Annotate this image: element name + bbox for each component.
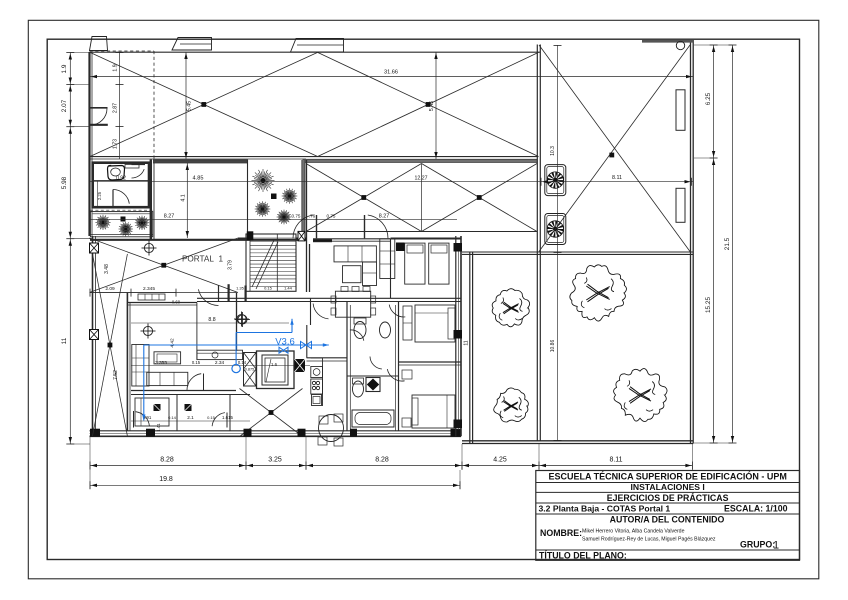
svg-text:8.8: 8.8 bbox=[208, 317, 215, 323]
svg-text:21.5: 21.5 bbox=[724, 237, 731, 250]
svg-text:4.42: 4.42 bbox=[170, 338, 176, 348]
svg-text:5.98: 5.98 bbox=[61, 176, 68, 189]
svg-text:0.15: 0.15 bbox=[192, 360, 201, 365]
svg-text:0.14: 0.14 bbox=[168, 415, 177, 420]
svg-text:7.52: 7.52 bbox=[113, 370, 119, 380]
svg-text:PORTAL 1: PORTAL 1 bbox=[182, 255, 224, 264]
svg-text:2.87: 2.87 bbox=[113, 103, 119, 113]
svg-text:Mikel Herrero Vitoria, Alba Ca: Mikel Herrero Vitoria, Alba Candela Valv… bbox=[582, 529, 685, 535]
svg-text:8.11: 8.11 bbox=[612, 175, 622, 181]
svg-text:3.25: 3.25 bbox=[268, 456, 282, 463]
svg-text:1.73: 1.73 bbox=[113, 139, 119, 149]
svg-text:8.28: 8.28 bbox=[160, 456, 174, 463]
svg-text:4.85: 4.85 bbox=[193, 175, 204, 181]
svg-text:1.6: 1.6 bbox=[271, 362, 278, 367]
svg-text:8.27: 8.27 bbox=[379, 213, 390, 219]
svg-text:6.25: 6.25 bbox=[705, 92, 712, 105]
svg-text:3.355: 3.355 bbox=[155, 360, 167, 366]
svg-text:0.15: 0.15 bbox=[264, 286, 273, 291]
svg-text:1: 1 bbox=[773, 540, 779, 552]
svg-text:1.44: 1.44 bbox=[284, 286, 293, 291]
svg-text:0.14: 0.14 bbox=[238, 360, 247, 365]
svg-text:1.615: 1.615 bbox=[222, 415, 234, 420]
svg-text:ESCALA: 1/100: ESCALA: 1/100 bbox=[724, 504, 788, 514]
svg-text:8.28: 8.28 bbox=[375, 456, 389, 463]
svg-text:0.92: 0.92 bbox=[116, 176, 126, 182]
svg-text:3.79: 3.79 bbox=[228, 260, 234, 270]
svg-text:TÍTULO DEL PLANO:: TÍTULO DEL PLANO: bbox=[539, 550, 627, 560]
svg-text:11: 11 bbox=[61, 337, 68, 344]
svg-text:2.1: 2.1 bbox=[187, 415, 194, 420]
svg-text:2.09: 2.09 bbox=[105, 286, 115, 292]
svg-text:NOMBRE:: NOMBRE: bbox=[540, 528, 582, 538]
svg-text:3.2 Planta Baja - COTAS Portal: 3.2 Planta Baja - COTAS Portal 1 bbox=[539, 504, 671, 514]
svg-text:5.45: 5.45 bbox=[429, 101, 435, 111]
svg-text:Samuel Rodríguez-Rey de Lucas,: Samuel Rodríguez-Rey de Lucas, Miguel Pa… bbox=[582, 537, 716, 543]
svg-text:EJERCICIOS DE PRÁCTICAS: EJERCICIOS DE PRÁCTICAS bbox=[607, 493, 729, 503]
svg-text:19.8: 19.8 bbox=[159, 476, 173, 483]
svg-text:5.45: 5.45 bbox=[187, 101, 193, 111]
svg-text:1.35: 1.35 bbox=[236, 286, 245, 291]
svg-text:2.07: 2.07 bbox=[61, 99, 68, 112]
svg-text:V3.6: V3.6 bbox=[275, 337, 295, 348]
svg-text:0.75: 0.75 bbox=[327, 213, 336, 218]
svg-text:15.25: 15.25 bbox=[705, 297, 712, 313]
svg-text:1.9: 1.9 bbox=[61, 64, 68, 73]
svg-text:0.75: 0.75 bbox=[292, 213, 301, 218]
svg-text:10.86: 10.86 bbox=[550, 340, 556, 353]
svg-text:0.875: 0.875 bbox=[245, 368, 255, 372]
svg-text:AUTOR/A DEL CONTENIDO: AUTOR/A DEL CONTENIDO bbox=[610, 515, 725, 525]
svg-text:GRUPO:: GRUPO: bbox=[740, 540, 775, 550]
svg-text:31.66: 31.66 bbox=[384, 70, 398, 76]
svg-text:4.1: 4.1 bbox=[181, 194, 187, 201]
svg-text:8.27: 8.27 bbox=[164, 213, 175, 219]
svg-text:12.27: 12.27 bbox=[415, 175, 428, 181]
svg-text:8.11: 8.11 bbox=[609, 456, 622, 463]
svg-text:INSTALACIONES I: INSTALACIONES I bbox=[630, 482, 704, 492]
svg-text:ESCUELA TÉCNICA SUPERIOR DE ED: ESCUELA TÉCNICA SUPERIOR DE EDIFICACIÓN … bbox=[548, 471, 786, 482]
svg-text:2.34: 2.34 bbox=[215, 360, 225, 366]
svg-text:4.25: 4.25 bbox=[493, 456, 507, 463]
svg-text:10.3: 10.3 bbox=[550, 146, 556, 156]
svg-text:2.345: 2.345 bbox=[143, 286, 155, 292]
svg-text:2.25: 2.25 bbox=[97, 191, 102, 200]
svg-text:1.9: 1.9 bbox=[113, 64, 119, 71]
svg-text:3.48: 3.48 bbox=[104, 264, 110, 274]
